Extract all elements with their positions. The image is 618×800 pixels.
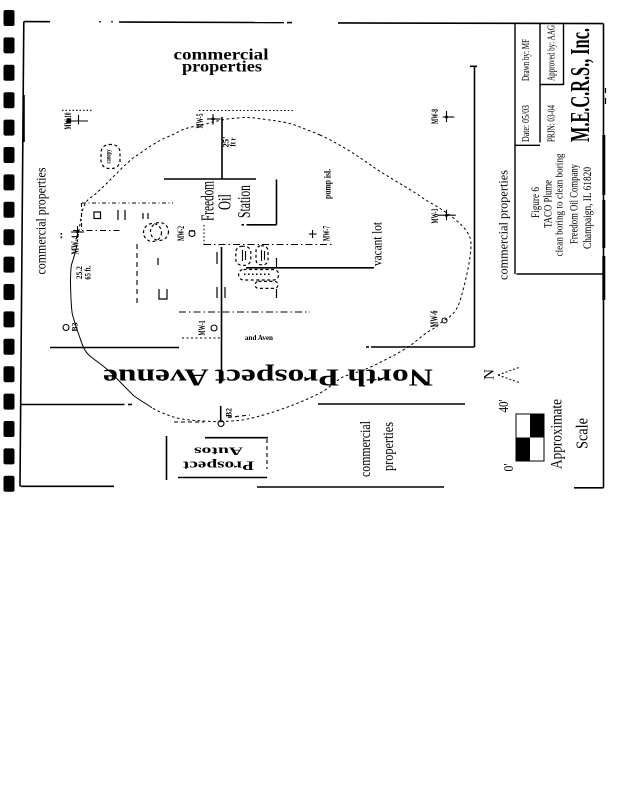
svg-text:MW-8: MW-8 (430, 109, 440, 124)
svg-text:TACO Plume: TACO Plume (541, 180, 555, 228)
svg-text:Approved by: AAG: Approved by: AAG (546, 25, 558, 81)
svg-text:Champaign, IL 61820: Champaign, IL 61820 (580, 167, 594, 249)
svg-text:Oil: Oil (215, 194, 235, 210)
svg-text:B2: B2 (224, 408, 234, 417)
svg-text:MW-7: MW-7 (322, 226, 332, 241)
svg-text:Station: Station (234, 185, 254, 218)
svg-text:Date: 05/03: Date: 05/03 (520, 105, 532, 142)
svg-text:Approximate: Approximate (549, 399, 566, 469)
svg-text:Scale: Scale (573, 418, 592, 449)
svg-text:Freedom Oil Company: Freedom Oil Company (567, 164, 581, 244)
svg-text:North Prospect Avenue: North Prospect Avenue (103, 363, 433, 389)
svg-text:N: N (482, 369, 498, 380)
svg-text:MW-1: MW-1 (197, 320, 207, 335)
svg-text:Autos: Autos (193, 445, 243, 459)
svg-text:65 ft.: 65 ft. (83, 266, 93, 280)
svg-text:ft r: ft r (229, 137, 238, 146)
svg-text:MW-3: MW-3 (430, 208, 440, 223)
svg-text:properties: properties (182, 59, 262, 76)
svg-text:M.E.C.R.S., Inc.: M.E.C.R.S., Inc. (565, 28, 595, 142)
svg-text:commercial: commercial (358, 421, 374, 477)
svg-text:Prospect: Prospect (182, 459, 254, 474)
svg-text:PRJN: 03-04: PRJN: 03-04 (546, 105, 558, 142)
svg-text:and Aven: and Aven (245, 334, 273, 342)
svg-text:0': 0' (502, 464, 517, 472)
svg-text:properties: properties (381, 422, 397, 471)
svg-text:pump isl.: pump isl. (323, 169, 333, 199)
svg-text:40': 40' (497, 400, 512, 413)
svg-text:Drawn by: MF: Drawn by: MF (520, 39, 532, 81)
svg-text:MW-2: MW-2 (176, 226, 186, 241)
svg-text:MW-4: MW-4 (71, 236, 82, 255)
svg-text:B3: B3 (70, 323, 80, 332)
svg-text:commercial properties: commercial properties (34, 168, 49, 275)
svg-text:clean boring to clean boring: clean boring to clean boring (555, 153, 566, 257)
svg-text:canopy: canopy (105, 149, 113, 163)
svg-text:vacant lot: vacant lot (371, 222, 386, 266)
svg-text:MW-6: MW-6 (430, 311, 441, 328)
svg-text:commercial properties: commercial properties (496, 170, 511, 280)
